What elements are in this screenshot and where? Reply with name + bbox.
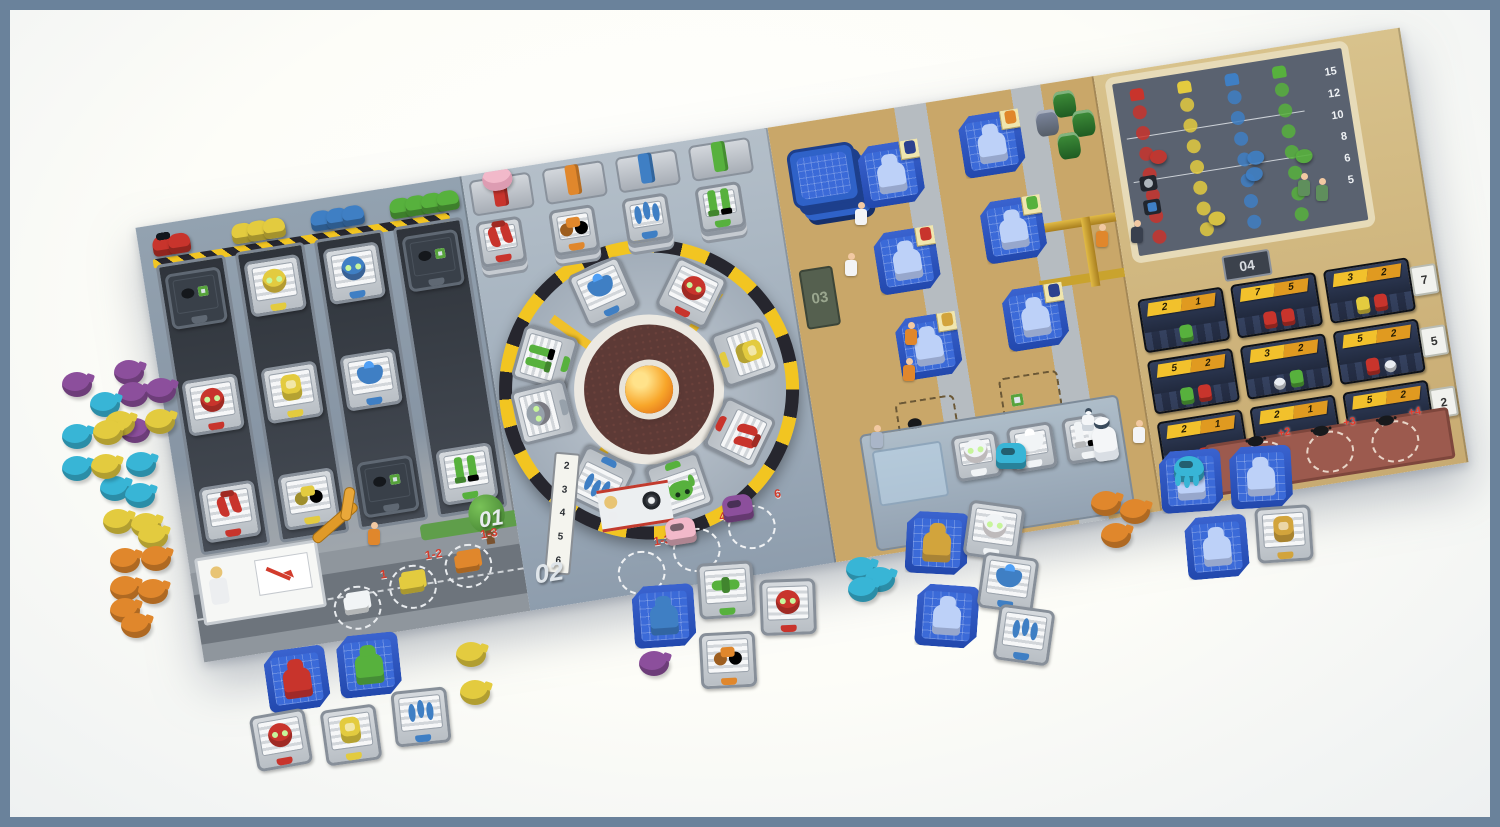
character-figure — [1096, 224, 1108, 249]
character-figure — [1133, 420, 1145, 445]
character-figure — [1131, 220, 1143, 245]
character-figure — [1316, 178, 1328, 203]
character-figure — [855, 202, 867, 227]
character-figure — [905, 322, 917, 347]
character-figure — [1298, 173, 1310, 198]
character-figure — [871, 425, 883, 450]
character-figure — [845, 253, 857, 278]
tabletop-scene: 01 1 1-2 1-3 — [0, 0, 1500, 827]
figure-layer — [10, 10, 1490, 817]
character-figure — [903, 358, 915, 383]
character-figure — [1082, 408, 1098, 438]
character-figure — [368, 522, 380, 547]
